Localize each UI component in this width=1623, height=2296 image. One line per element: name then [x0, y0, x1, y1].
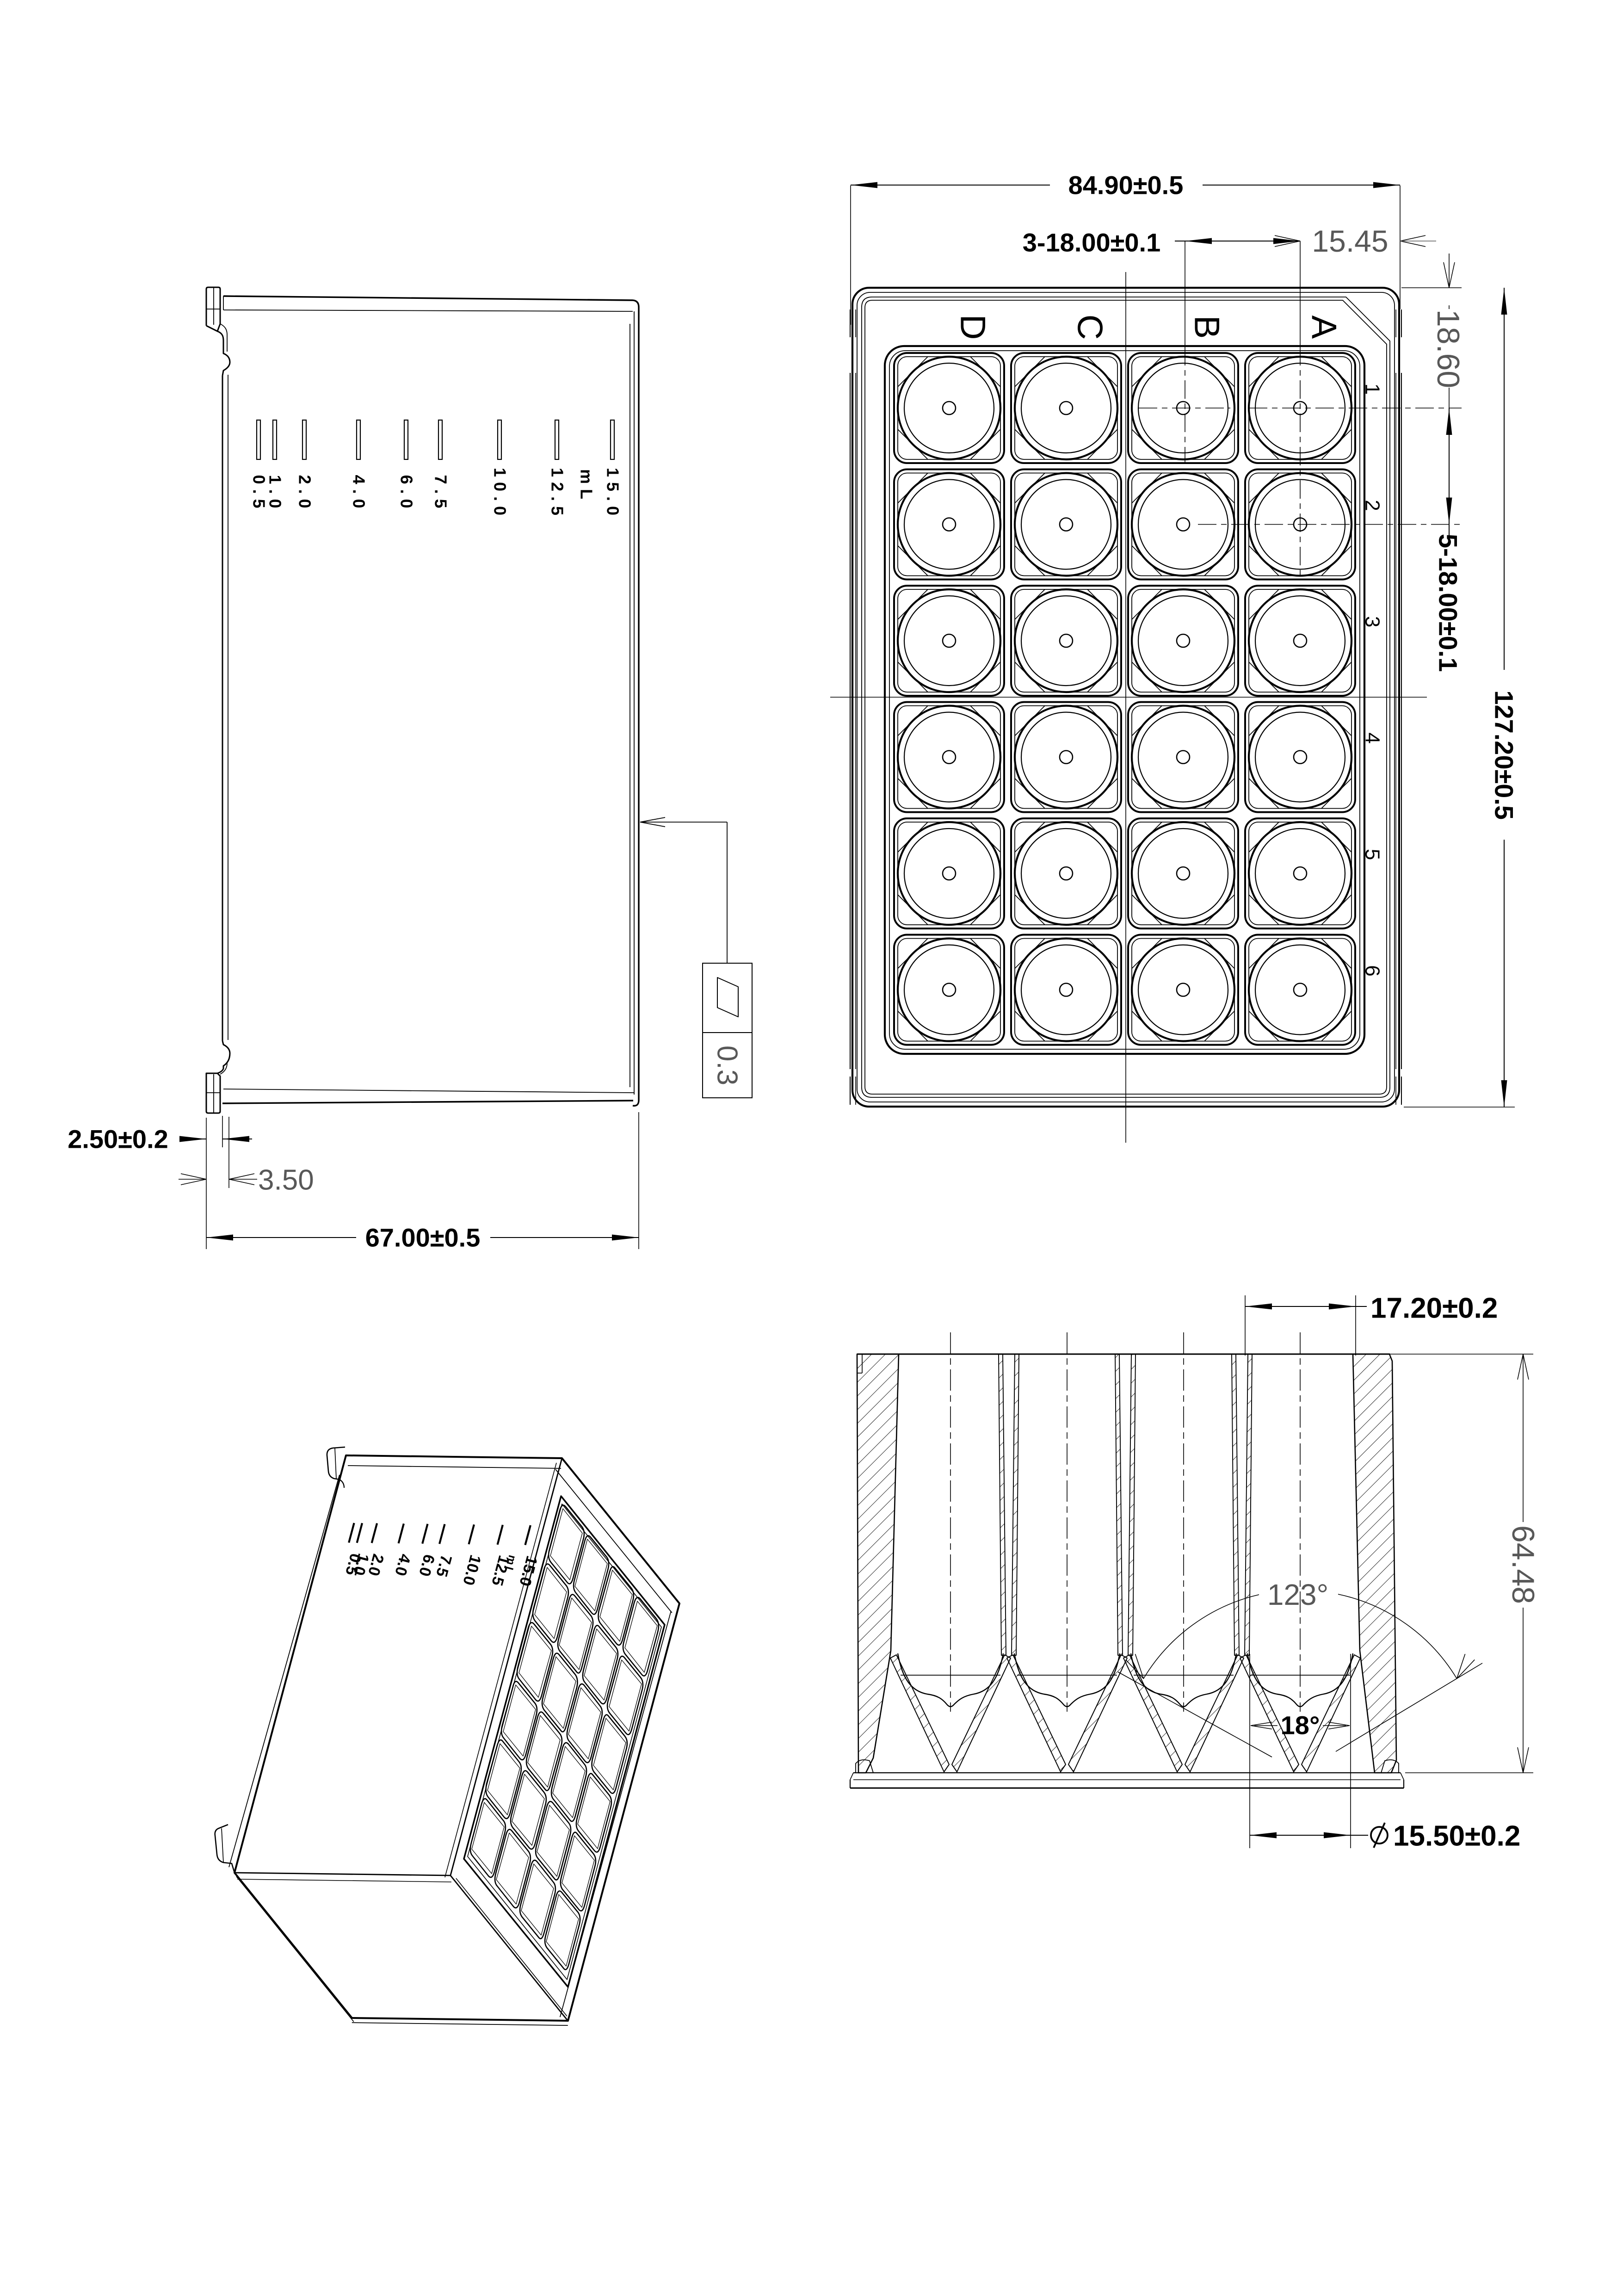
svg-text:2.0: 2.0	[296, 475, 315, 513]
svg-text:6: 6	[1361, 965, 1384, 976]
svg-text:15.0: 15.0	[604, 468, 623, 520]
svg-text:6.0: 6.0	[397, 475, 416, 513]
svg-text:mL: mL	[577, 469, 596, 504]
svg-text:A: A	[1304, 316, 1344, 339]
svg-text:1.0: 1.0	[266, 475, 285, 513]
svg-text:3-18.00±0.1: 3-18.00±0.1	[1023, 228, 1161, 257]
svg-text:10.0: 10.0	[491, 468, 510, 520]
svg-text:7.5: 7.5	[432, 475, 450, 513]
svg-text:18.60: 18.60	[1431, 309, 1466, 388]
svg-text:5: 5	[1361, 849, 1384, 860]
svg-text:64.48: 64.48	[1506, 1525, 1541, 1604]
svg-text:D: D	[953, 315, 993, 340]
svg-text:123°: 123°	[1267, 1578, 1328, 1611]
svg-text:12.5: 12.5	[548, 468, 567, 520]
svg-text:127.20±0.5: 127.20±0.5	[1490, 690, 1519, 820]
svg-text:0.5: 0.5	[250, 475, 269, 513]
svg-text:3.50: 3.50	[258, 1164, 314, 1196]
svg-text:5-18.00±0.1: 5-18.00±0.1	[1434, 534, 1463, 672]
svg-text:3: 3	[1361, 616, 1384, 627]
svg-text:B: B	[1187, 316, 1227, 339]
svg-text:1: 1	[1361, 384, 1384, 395]
svg-text:84.90±0.5: 84.90±0.5	[1068, 171, 1184, 200]
svg-text:18°: 18°	[1281, 1711, 1320, 1740]
svg-text:17.20±0.2: 17.20±0.2	[1370, 1293, 1498, 1324]
svg-text:15.45: 15.45	[1312, 224, 1388, 258]
svg-text:15.50±0.2: 15.50±0.2	[1393, 1820, 1520, 1852]
svg-text:2: 2	[1361, 500, 1384, 511]
svg-text:0.3: 0.3	[711, 1046, 743, 1085]
svg-text:C: C	[1070, 315, 1110, 340]
svg-text:4.0: 4.0	[350, 475, 369, 513]
svg-text:2.50±0.2: 2.50±0.2	[68, 1125, 168, 1154]
svg-text:67.00±0.5: 67.00±0.5	[365, 1223, 481, 1252]
svg-text:4: 4	[1361, 732, 1384, 743]
